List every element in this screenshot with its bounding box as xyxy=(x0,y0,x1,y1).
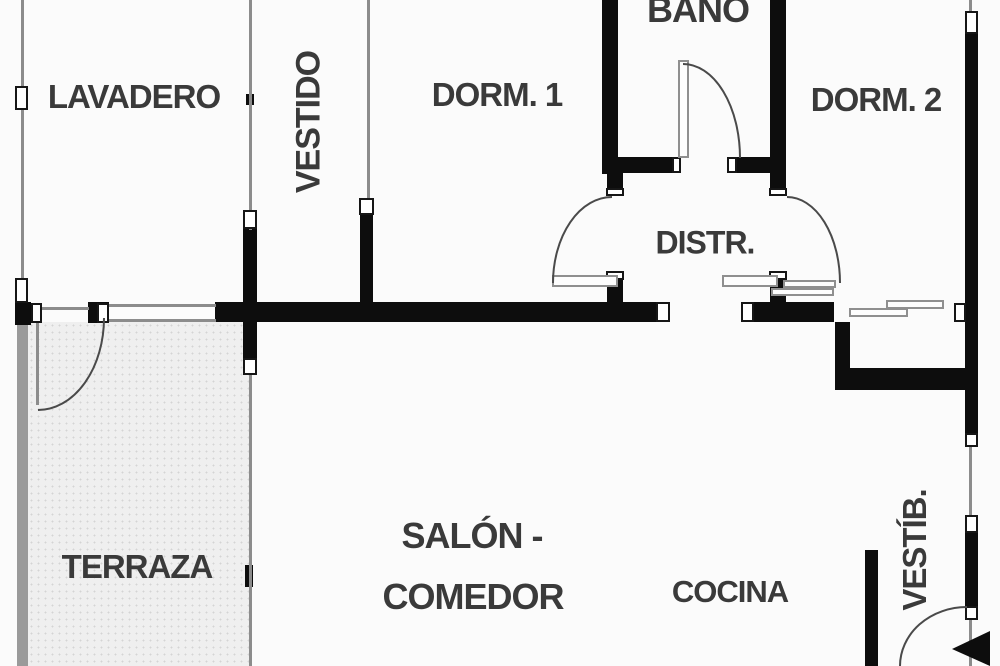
thin-wall-lavadero-left xyxy=(21,0,24,303)
sliding-door-bar xyxy=(783,280,836,288)
door-jamb xyxy=(31,303,42,323)
window-jamb xyxy=(15,278,28,303)
room-label-lavadero: LAVADERO xyxy=(48,78,220,116)
thin-wall-vestidor-right xyxy=(367,0,370,215)
door-jamb xyxy=(954,303,966,322)
door-jamb xyxy=(359,198,374,215)
wall-segment xyxy=(15,302,31,325)
thin-wall-terraza-right xyxy=(249,358,252,666)
window-jamb xyxy=(965,515,978,533)
wall-segment-vestibulo xyxy=(865,550,878,666)
sliding-door-bar xyxy=(771,288,834,296)
wall-segment xyxy=(360,214,373,307)
room-label-bano: BAÑO xyxy=(647,0,749,31)
room-label-vestidor: VESTIDO xyxy=(290,51,329,193)
terraza-outer-wall xyxy=(17,324,28,666)
room-label-salon-line1: SALÓN - xyxy=(402,515,543,557)
thin-wall-lavadero-right xyxy=(249,0,252,230)
room-label-dorm1: DORM. 1 xyxy=(432,76,563,114)
bano-door-leaf xyxy=(678,60,689,158)
door-jamb xyxy=(769,188,787,196)
terraza-floor-texture xyxy=(28,322,250,666)
room-label-terraza: TERRAZA xyxy=(62,548,213,586)
door-jamb xyxy=(741,302,754,322)
wall-segment-right-exterior xyxy=(965,33,978,434)
window-jamb xyxy=(965,11,978,34)
wall-segment-bano-left xyxy=(602,0,618,174)
door-jamb xyxy=(965,606,978,620)
sliding-door-bar xyxy=(849,308,908,317)
wall-segment-main-right xyxy=(753,302,834,322)
window-jamb xyxy=(965,433,978,447)
window-line xyxy=(969,446,972,516)
thin-line xyxy=(969,618,972,666)
wall-segment xyxy=(736,157,770,173)
door-sill-line xyxy=(38,307,89,310)
door-jamb xyxy=(243,358,257,375)
room-label-salon-line2: COMEDOR xyxy=(383,576,564,618)
door-jamb xyxy=(243,210,257,229)
window-line xyxy=(108,304,216,307)
wall-segment xyxy=(842,368,971,390)
room-label-cocina: COCINA xyxy=(672,574,788,610)
distr-dorm1-door-arc xyxy=(553,197,612,283)
door-jamb xyxy=(656,302,670,322)
wall-segment-bano-right xyxy=(770,0,786,189)
bano-door-arc xyxy=(683,64,740,158)
door-jamb xyxy=(672,157,681,173)
door-jamb xyxy=(606,188,624,196)
distr-dorm2-door-arc xyxy=(787,197,840,283)
room-label-distribuidor: DISTR. xyxy=(656,225,755,262)
entrance-door-arc xyxy=(900,607,967,666)
floor-plan: LAVADERO VESTIDO DORM. 1 BAÑO DORM. 2 DI… xyxy=(0,0,1000,666)
door-jamb xyxy=(727,157,737,173)
wall-segment xyxy=(618,157,676,173)
window-line xyxy=(108,319,216,322)
wall-segment xyxy=(243,228,257,359)
distr-dorm1-door-leaf xyxy=(552,275,618,287)
door-jamb xyxy=(97,303,109,323)
room-label-vestibulo: VESTÍB. xyxy=(896,489,934,610)
window-jamb xyxy=(15,86,28,110)
room-label-dorm2: DORM. 2 xyxy=(811,81,942,119)
distr-dorm2-door-leaf xyxy=(722,275,778,287)
wall-segment-main-left xyxy=(215,302,661,322)
wall-segment xyxy=(965,532,978,608)
